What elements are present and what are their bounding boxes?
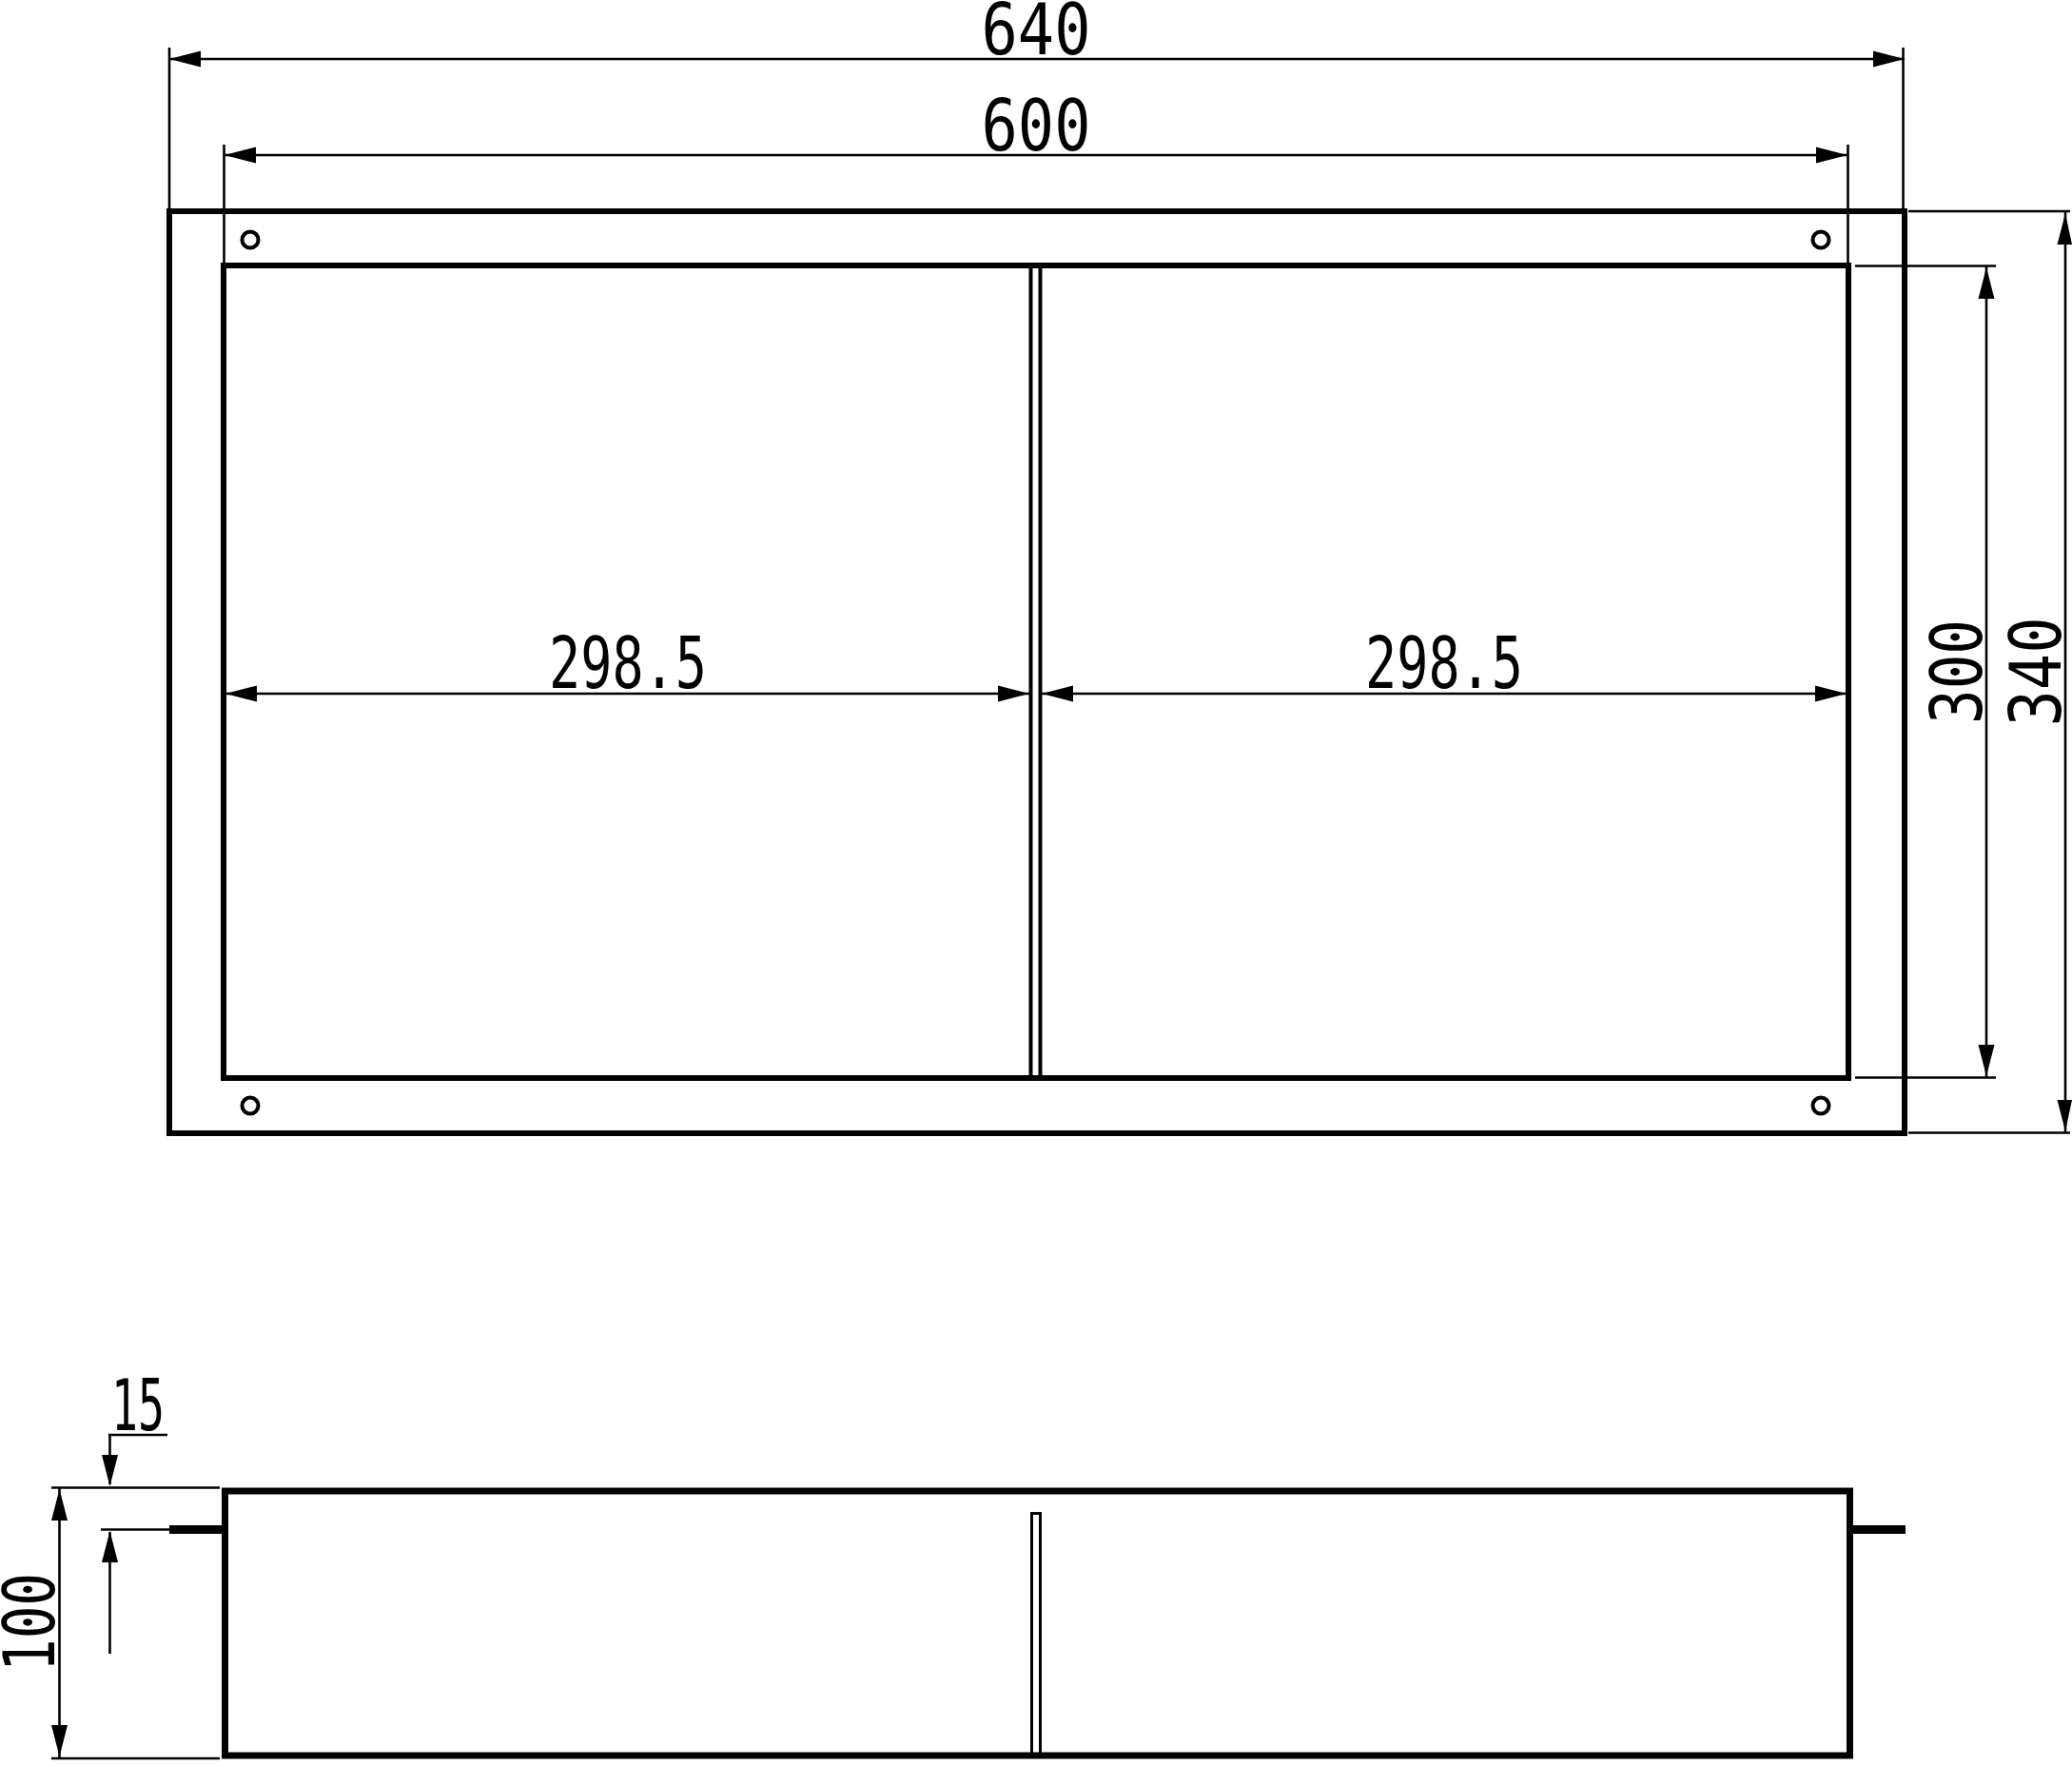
dim-right-compartment: 298.5 — [1041, 622, 1847, 704]
arrowhead-right — [1816, 147, 1847, 164]
dim-opening-width: 600 — [224, 85, 1848, 265]
mounting-hole-bottom-right — [1813, 1098, 1829, 1114]
dim-label-right-compartment: 298.5 — [1365, 622, 1523, 704]
dim-label-opening-width: 600 — [982, 85, 1091, 167]
arrowhead-left — [225, 147, 256, 164]
arrowhead-up — [102, 1531, 118, 1562]
arrowhead-up — [51, 1489, 68, 1521]
technical-drawing-sheet: 640 600 298.5 298.5 — [0, 0, 2072, 1766]
inner-opening — [224, 265, 1848, 1078]
mounting-hole-bottom-left — [243, 1098, 259, 1114]
dim-label-depth: 100 — [0, 1573, 70, 1672]
arrowhead-bottom — [1979, 1045, 1995, 1076]
dim-flange-offset: 15 — [101, 1364, 169, 1654]
arrowhead-down — [51, 1725, 68, 1756]
dim-left-compartment: 298.5 — [225, 622, 1030, 704]
front-view: 640 600 298.5 298.5 — [169, 0, 2072, 1133]
section-view: 15 100 — [0, 1364, 1906, 1758]
arrowhead-left — [1042, 686, 1073, 702]
arrowhead-right — [998, 686, 1029, 702]
divider-slot — [1032, 1514, 1041, 1755]
arrowhead-top — [1979, 267, 1995, 299]
arrowhead-right — [1873, 51, 1905, 68]
arrowhead-down — [102, 1455, 118, 1486]
arrowhead-bottom — [2058, 1100, 2072, 1131]
mounting-hole-top-left — [243, 232, 259, 248]
arrowhead-left — [169, 51, 201, 68]
dim-label-left-compartment: 298.5 — [549, 622, 707, 704]
dim-label-opening-height: 300 — [1916, 619, 1998, 724]
arrowhead-left — [225, 686, 257, 702]
dim-label-flange-offset: 15 — [111, 1364, 165, 1446]
arrowhead-right — [1815, 686, 1847, 702]
niche-body-outline — [225, 1491, 1850, 1756]
dim-label-outer-height: 340 — [1995, 618, 2072, 727]
dim-label-outer-width: 640 — [982, 0, 1091, 70]
drawing-svg: 640 600 298.5 298.5 — [0, 0, 2072, 1766]
mounting-hole-top-right — [1813, 232, 1829, 248]
outer-frame — [169, 211, 1905, 1133]
dim-opening-height: 300 — [1855, 266, 1998, 1078]
arrowhead-top — [2058, 213, 2072, 245]
